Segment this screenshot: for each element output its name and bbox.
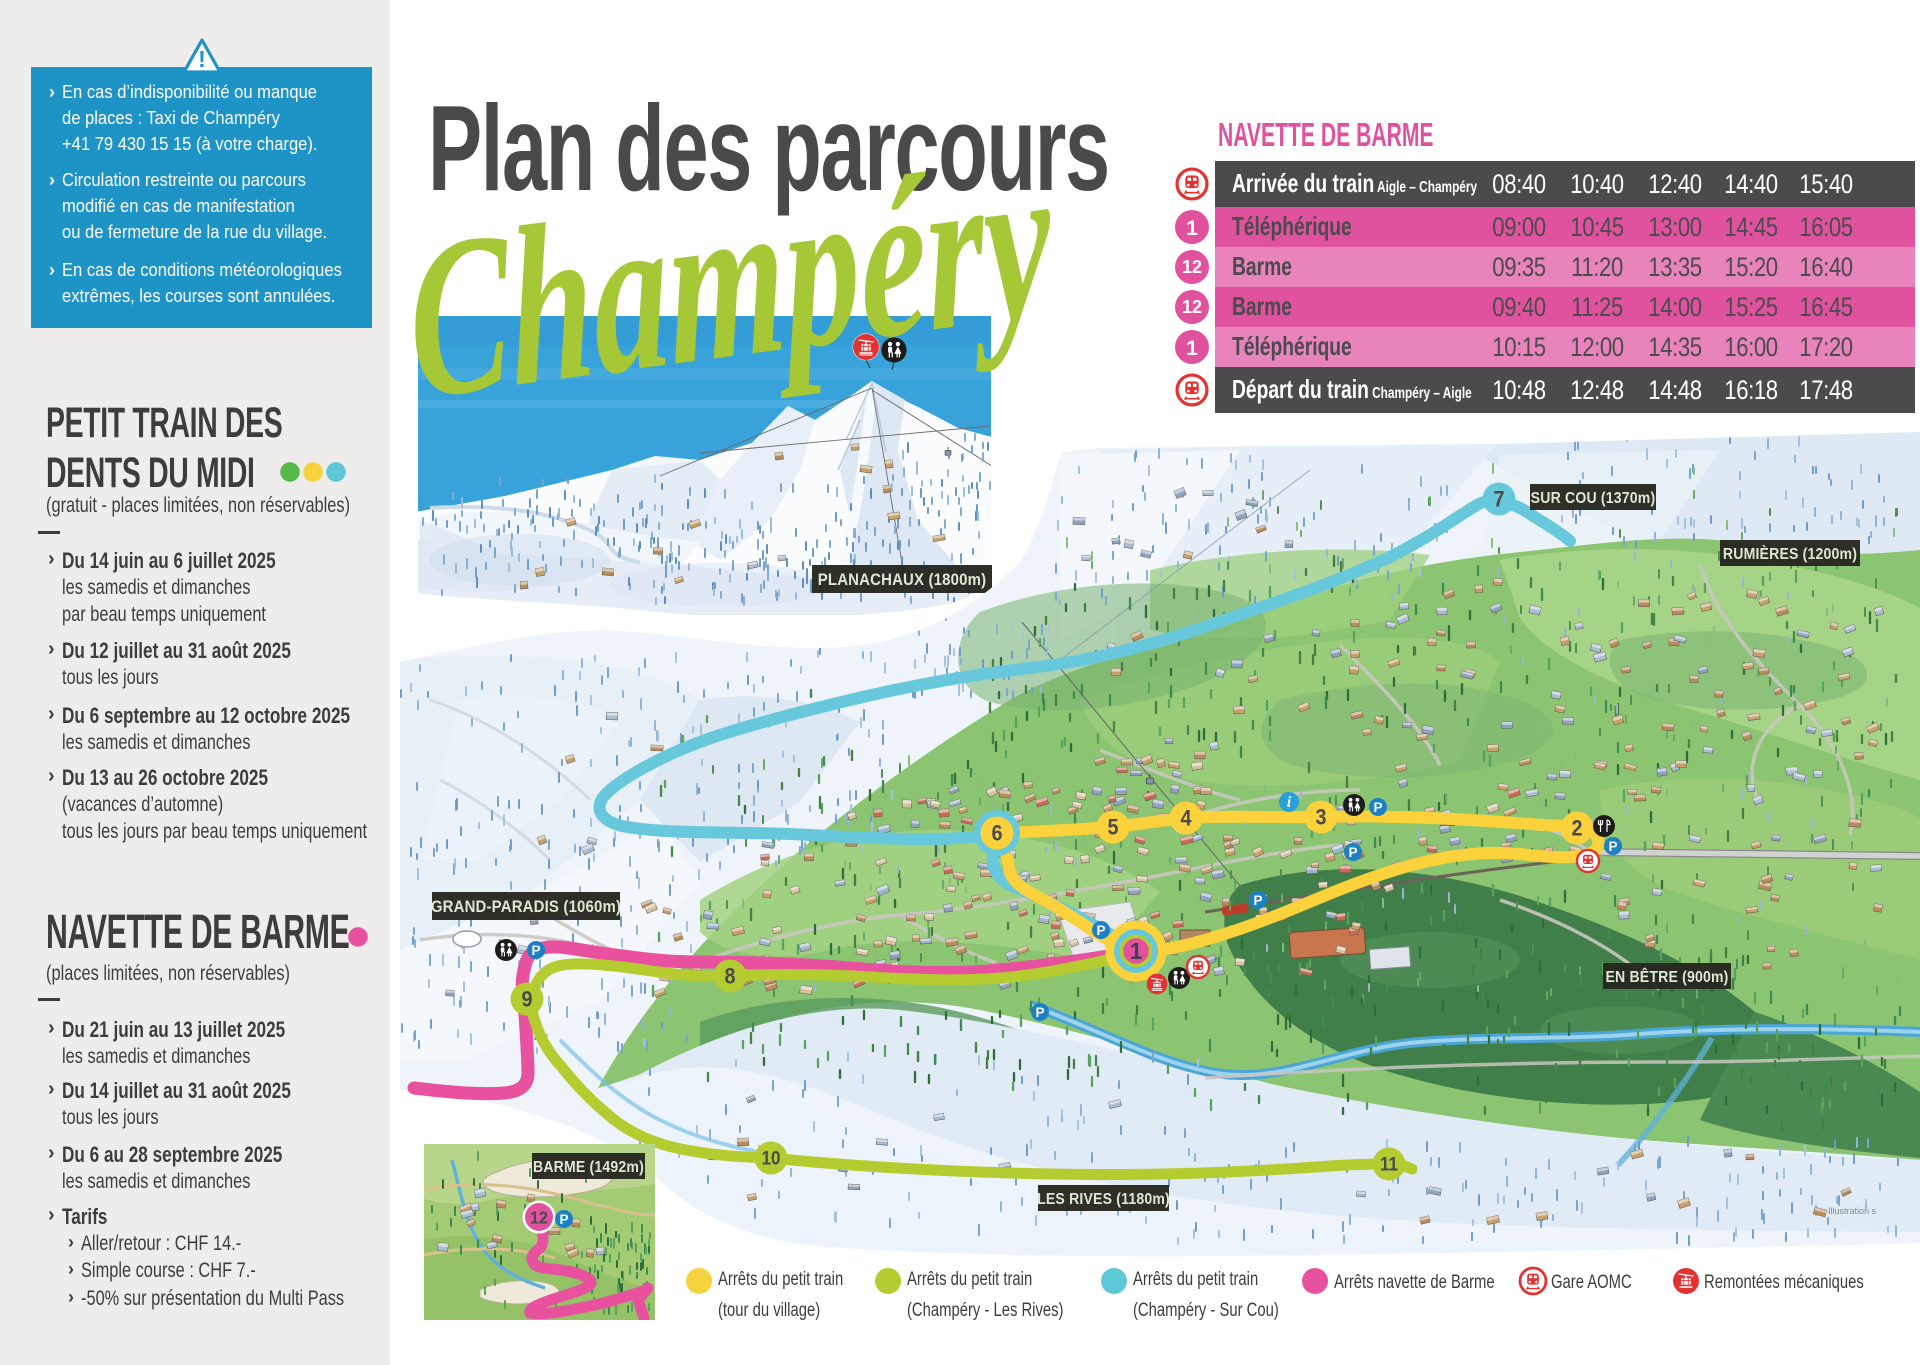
svg-text:PLANACHAUX (1800m): PLANACHAUX (1800m) [818,571,986,589]
svg-text:11: 11 [1380,1154,1398,1175]
svg-text:1: 1 [1130,938,1143,964]
svg-text:12: 12 [1182,297,1202,317]
svg-text:1: 1 [1186,337,1198,360]
svg-text:8: 8 [724,965,735,989]
svg-text:3: 3 [1315,806,1326,830]
svg-text:5: 5 [1107,816,1118,840]
svg-text:!: ! [198,46,206,72]
svg-text:12: 12 [530,1208,548,1228]
svg-text:BARME (1492m): BARME (1492m) [533,1158,644,1176]
svg-text:RUMIÈRES (1200m): RUMIÈRES (1200m) [1723,545,1857,563]
svg-text:EN BÊTRE (900m): EN BÊTRE (900m) [1605,967,1728,986]
svg-text:4: 4 [1180,807,1191,831]
svg-text:12: 12 [1182,257,1202,277]
svg-text:Illustration s: Illustration s [1828,1206,1877,1216]
svg-text:1: 1 [1186,217,1198,240]
svg-text:LES RIVES (1180m): LES RIVES (1180m) [1037,1190,1170,1208]
svg-text:9: 9 [521,988,532,1012]
svg-text:2: 2 [1571,817,1582,841]
svg-text:6: 6 [991,822,1002,846]
svg-text:SUR COU (1370m): SUR COU (1370m) [1531,489,1656,507]
svg-text:10: 10 [761,1148,780,1169]
svg-text:GRAND-PARADIS (1060m): GRAND-PARADIS (1060m) [431,898,621,916]
svg-text:7: 7 [1493,488,1504,512]
